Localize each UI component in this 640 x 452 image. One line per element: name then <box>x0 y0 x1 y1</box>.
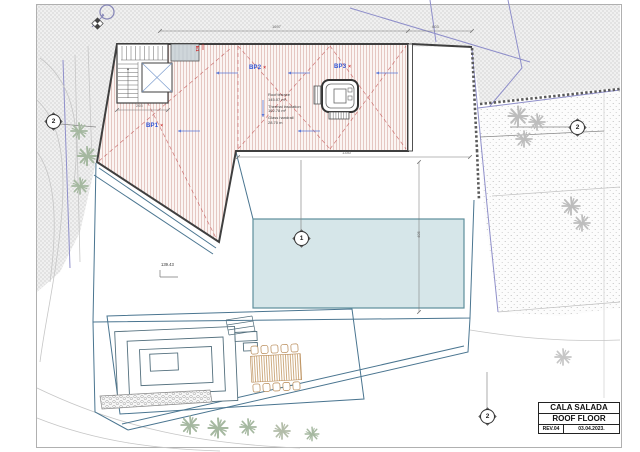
dimension-stair: 265 <box>136 103 143 108</box>
dimension-top-total: 1697 <box>272 24 281 29</box>
area-annotations: Roof terrace 145.07 m² Thermal insulatio… <box>268 93 301 128</box>
section-marker-2-bottom: 2 <box>474 403 500 429</box>
bp2-marker: × <box>263 65 266 71</box>
sun-loungers <box>250 344 302 393</box>
revision-label: REV.04 <box>539 425 564 433</box>
title-block: CALA SALADA ROOF FLOOR REV.04 03.04.2023… <box>538 402 620 434</box>
roof-label-bp1: BP1 × <box>146 123 163 129</box>
section-marker-number: 1 <box>294 231 309 246</box>
pool <box>253 219 464 308</box>
roof-label-bp2: BP2 × <box>249 65 266 71</box>
skylight <box>142 63 172 92</box>
roof-right-section <box>408 44 472 151</box>
section-marker-2-right: 2 <box>564 114 590 140</box>
handrail-value: 28.70 m <box>268 121 301 126</box>
insulation-value: 162.78 m² <box>268 109 301 114</box>
dimension-terrace-width: 1340 <box>342 150 351 155</box>
dimension-terrace-height: 405 <box>416 231 421 238</box>
roof-terrace-value: 145.07 m² <box>268 98 301 103</box>
section-marker-number: 2 <box>480 409 495 424</box>
bp1-marker: × <box>160 123 163 129</box>
spot-elevation: 139.43 <box>161 262 174 267</box>
bp3-marker: × <box>348 64 351 70</box>
project-title: CALA SALADA <box>539 403 619 414</box>
section-marker-number: 2 <box>570 120 585 135</box>
stair-exit-label: E1 <box>195 46 200 52</box>
revision-date: 03.04.2023. <box>564 425 619 433</box>
plan-drawing <box>0 0 640 452</box>
section-marker-2-left: 2 <box>40 108 66 134</box>
roof-label-bp3: BP3 × <box>334 64 351 70</box>
roof-floor-plan-sheet: BP1 × BP2 × BP3 × E1 Roof terrace 145.07… <box>0 0 640 452</box>
drawing-title: ROOF FLOOR <box>539 414 619 425</box>
dimension-top-right: 603 <box>432 24 439 29</box>
section-marker-number: 2 <box>46 114 61 129</box>
section-marker-1-center: 1 <box>288 225 314 251</box>
